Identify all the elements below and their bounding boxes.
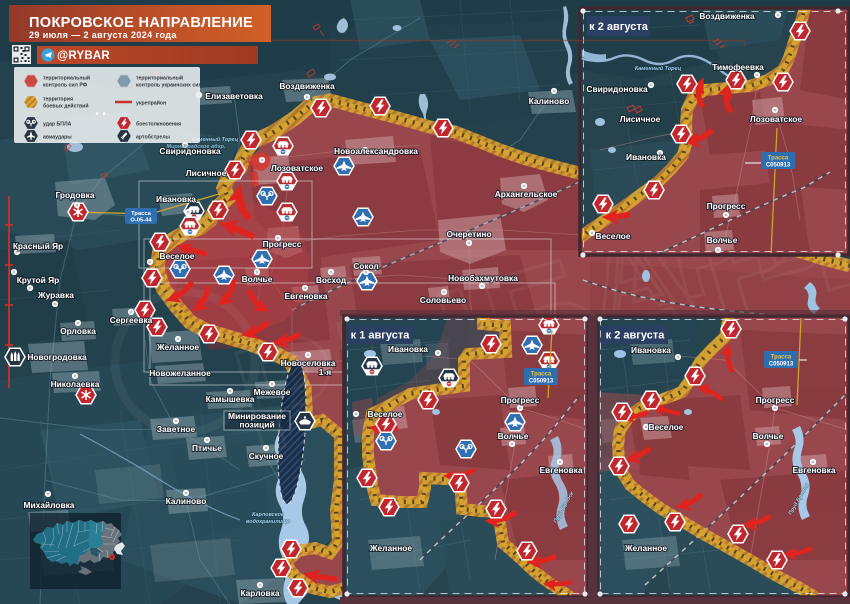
svg-text:С050913: С050913 (529, 379, 554, 385)
svg-text:Соловьево: Соловьево (420, 295, 466, 305)
svg-text:Трасса: Трасса (131, 211, 152, 217)
svg-text:С050913: С050913 (766, 163, 791, 169)
svg-text:авиаудары: авиаудары (43, 135, 72, 141)
svg-text:Веселое: Веселое (649, 422, 684, 432)
svg-text:Карловка: Карловка (240, 588, 279, 598)
svg-text:Прогресс: Прогресс (501, 395, 540, 405)
svg-text:Лозоватское: Лозоватское (750, 114, 802, 124)
svg-text:территориальный: территориальный (43, 75, 90, 82)
svg-text:Веселое: Веселое (160, 251, 195, 261)
svg-text:Веселое: Веселое (596, 231, 631, 241)
svg-text:1-я: 1-я (319, 367, 332, 377)
svg-text:территориальный: территориальный (136, 75, 183, 82)
svg-text:Волчье: Волчье (753, 431, 784, 441)
svg-text:Журавка: Журавка (37, 290, 74, 300)
svg-text:боевых действий: боевых действий (43, 103, 89, 110)
svg-text:артобстрелы: артобстрелы (136, 134, 171, 141)
svg-text:Воздвиженка: Воздвиженка (279, 81, 335, 91)
svg-text:удар БПЛА: удар БПЛА (43, 122, 72, 128)
svg-text:укрепрайон: укрепрайон (136, 100, 166, 107)
svg-text:Трасса: Трасса (771, 355, 792, 361)
svg-text:к 2 августа: к 2 августа (589, 21, 649, 33)
svg-text:водохранилище: водохранилище (246, 519, 290, 525)
svg-text:Крутой Яр: Крутой Яр (17, 275, 60, 285)
svg-text:Очеретино: Очеретино (446, 229, 491, 239)
svg-text:Ивановка: Ивановка (631, 345, 671, 355)
svg-text:Желанное: Желанное (156, 342, 199, 352)
svg-text:Ивановка: Ивановка (388, 344, 428, 354)
svg-text:Волчье: Волчье (707, 235, 738, 245)
svg-text:Евгеновка: Евгеновка (539, 465, 582, 475)
svg-text:О-05-44: О-05-44 (130, 218, 152, 224)
svg-text:Птичье: Птичье (192, 443, 222, 453)
svg-text:Скучное: Скучное (249, 451, 284, 461)
svg-text:Восход: Восход (316, 275, 347, 285)
svg-text:Новогродовка: Новогродовка (27, 352, 87, 362)
svg-text:Камышевка: Камышевка (206, 394, 255, 404)
svg-text:Прогресс: Прогресс (707, 201, 746, 211)
svg-text:Новоалександровка: Новоалександровка (334, 146, 418, 156)
svg-text:Лисичное: Лисичное (186, 168, 227, 178)
svg-text:Межевое: Межевое (254, 387, 291, 397)
svg-text:С050913: С050913 (769, 362, 794, 368)
svg-text:Евгеновка: Евгеновка (792, 465, 835, 475)
svg-text:Волчье: Волчье (242, 274, 273, 284)
svg-text:Орловка: Орловка (60, 326, 96, 336)
svg-text:Новожеланное: Новожеланное (149, 368, 211, 378)
svg-text:Михайловка: Михайловка (24, 500, 75, 510)
svg-text:Желанное: Желанное (624, 543, 667, 553)
svg-text:Лисичное: Лисичное (620, 114, 661, 124)
svg-text:Архангельское: Архангельское (495, 189, 558, 199)
svg-text:@RYBAR: @RYBAR (57, 50, 110, 62)
svg-text:Каменный Торец: Каменный Торец (635, 65, 682, 72)
svg-text:к 1 августа: к 1 августа (351, 330, 411, 342)
svg-text:Сергеевка: Сергеевка (110, 315, 153, 325)
svg-text:Веселое: Веселое (368, 409, 403, 419)
svg-text:Ивановка: Ивановка (156, 194, 196, 204)
svg-text:Гродовка: Гродовка (56, 190, 95, 200)
svg-text:Прогресс: Прогресс (756, 395, 795, 405)
svg-text:Трасса: Трасса (768, 156, 789, 162)
svg-text:Елизаветовка: Елизаветовка (205, 91, 263, 101)
svg-text:Тимофеевка: Тимофеевка (712, 62, 764, 72)
svg-text:29 июля — 2 августа 2024 года: 29 июля — 2 августа 2024 года (29, 30, 177, 40)
svg-text:Карловское: Карловское (252, 512, 284, 518)
svg-text:Трасса: Трасса (531, 372, 552, 378)
svg-text:Николаевка: Николаевка (51, 379, 100, 389)
svg-text:Заветное: Заветное (157, 424, 196, 434)
svg-text:контроль сил РФ: контроль сил РФ (43, 83, 88, 89)
svg-text:Прогресс: Прогресс (263, 239, 302, 249)
svg-text:ПОКРОВСКОЕ НАПРАВЛЕНИЕ: ПОКРОВСКОЕ НАПРАВЛЕНИЕ (29, 15, 253, 31)
svg-text:Свиридоновка: Свиридоновка (586, 84, 648, 94)
svg-text:Красный Яр: Красный Яр (13, 241, 63, 251)
svg-text:Сокол: Сокол (353, 261, 378, 271)
svg-text:Желанное: Желанное (369, 543, 412, 553)
svg-text:Волчье: Волчье (498, 431, 529, 441)
svg-text:территория: территория (43, 97, 73, 103)
svg-text:Ивановка: Ивановка (626, 152, 666, 162)
svg-text:Калиново: Калиново (166, 496, 207, 506)
svg-text:Новобахмутовка: Новобахмутовка (448, 273, 518, 283)
svg-text:контроль украинских сил: контроль украинских сил (136, 83, 202, 89)
svg-text:Калиново: Калиново (529, 96, 570, 106)
svg-text:боестолкновения: боестолкновения (136, 121, 181, 128)
svg-text:Мирноградское вдхр.: Мирноградское вдхр. (166, 144, 226, 150)
svg-text:Воздвиженка: Воздвиженка (699, 11, 755, 21)
svg-text:Евгеновка: Евгеновка (284, 291, 327, 301)
svg-text:Лозоватское: Лозоватское (271, 163, 323, 173)
svg-text:к 2 августа: к 2 августа (606, 330, 666, 342)
